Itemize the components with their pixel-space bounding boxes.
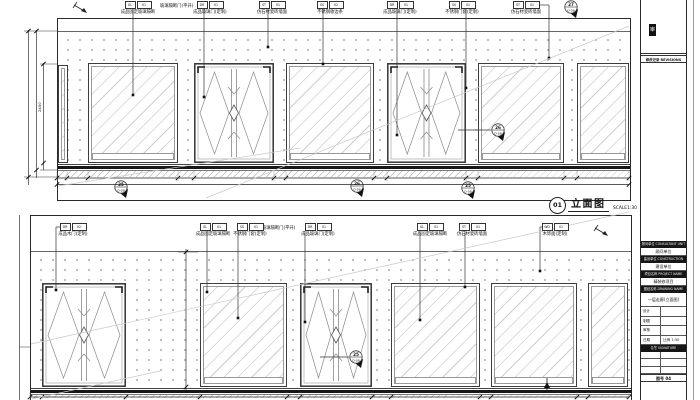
- tag-codes: DR 01: [378, 1, 422, 9]
- material-tag: SS 02 不锈钢收边条: [308, 1, 352, 15]
- signature-row: [641, 367, 686, 374]
- dim-label: 2400: [37, 102, 42, 112]
- material-tag: ST 01 仿石材瓷砖墙面: [250, 1, 294, 15]
- material-tag: SS 01 不锈钢门套(定制): [440, 1, 484, 15]
- drawing-sheet: 25D-0826D-0825D-0826D-0827D-0825D-082400…: [0, 0, 700, 400]
- tag-code: 01: [471, 223, 486, 231]
- info-value: [661, 307, 686, 316]
- tag-codes: ST 01: [250, 1, 294, 9]
- panel-base: [204, 377, 283, 384]
- tag-code: DR: [197, 1, 208, 9]
- sign-cell: [661, 352, 686, 358]
- tag-code: GL: [200, 223, 211, 231]
- tag-code: 01: [429, 223, 444, 231]
- tag-codes: SS 01: [228, 223, 272, 231]
- glass-hatch: [91, 66, 175, 160]
- tag-codes: WD 01: [533, 223, 577, 231]
- panel-base: [495, 377, 573, 384]
- revisions-header: 修改记录 REVISIONS: [641, 55, 686, 63]
- sign-cell: [661, 359, 686, 365]
- tag-label: 成品玻璃门(定制): [378, 10, 422, 15]
- svg-text:D-08: D-08: [567, 9, 574, 13]
- double-glass-door: [387, 63, 466, 163]
- tag-code: 01: [554, 223, 569, 231]
- signature-row: [641, 359, 686, 366]
- drawing-number-bubble: 01: [549, 197, 566, 214]
- panel-base: [395, 377, 476, 384]
- sheet-fold-line: [693, 0, 694, 400]
- titleblock-label: 顾问单位 CONSULTANT UNIT: [641, 241, 686, 248]
- info-label: 制图: [641, 317, 661, 326]
- tag-code: 02: [72, 223, 87, 231]
- material-tag: WD 01 木饰面(定制): [533, 223, 577, 237]
- titleblock-label: 建设单位 CONSTRUCTION UNIT: [641, 256, 686, 263]
- material-tag: ST 01 仿石材瓷砖墙面: [504, 1, 548, 15]
- floor-line: [31, 388, 631, 389]
- glass-hatch: [591, 286, 625, 384]
- tag-label: 成品玻璃门(定制): [296, 232, 340, 237]
- titleblock-label: 图纸名称 DRAWING NAME: [641, 286, 686, 293]
- sign-cell: [661, 367, 686, 373]
- tag-label: 成品固定玻璃隔断: [116, 10, 160, 15]
- tag-codes: DR 01: [296, 223, 340, 231]
- tag-label: 不锈钢门套(定制): [228, 232, 272, 237]
- tag-code: SS: [449, 1, 460, 9]
- tag-label: 成品固定玻璃隔断: [408, 232, 452, 237]
- glass-hatch: [481, 66, 561, 160]
- tag-code: DR: [305, 223, 316, 231]
- info-row: 设计: [641, 307, 686, 317]
- sign-cell: [641, 367, 661, 373]
- info-row: 日期 2013.07 比例 1:30: [641, 336, 686, 346]
- info-row: 审核: [641, 326, 686, 336]
- titleblock-label: 项目名称 PROJECT NAME: [641, 271, 686, 278]
- material-tag: DR 01 成品玻璃门(定制): [378, 1, 422, 15]
- glass-panel: [200, 283, 287, 387]
- tag-label: 仿石材瓷砖墙面: [504, 10, 548, 15]
- info-label: 日期 2013.07: [641, 336, 661, 345]
- floor-hatch: [31, 395, 631, 398]
- tag-code: 02: [329, 1, 344, 9]
- tag-label: 不锈钢门套(定制): [440, 10, 484, 15]
- title-block: 审 修改记录 REVISIONS 会签 SIGNATURE 图号 04 顾问单位…: [640, 0, 687, 400]
- tag-code: SS: [237, 223, 248, 231]
- titleblock-value: 一层走廊(立面图): [641, 293, 686, 307]
- info-label: 审核: [641, 326, 661, 335]
- tag-code: 01: [209, 1, 224, 9]
- tag-codes: GL 01: [116, 1, 160, 9]
- glass-hatch: [203, 286, 284, 384]
- tag-code: DR: [387, 1, 398, 9]
- panel-base: [592, 377, 624, 384]
- tag-code: ST: [459, 223, 470, 231]
- info-row: 制图: [641, 317, 686, 327]
- glass-panel: [391, 283, 480, 387]
- glass-hatch: [394, 286, 477, 384]
- info-label: 设计: [641, 307, 661, 316]
- glass-hatch: [494, 286, 574, 384]
- drawing-title: 立面图: [568, 195, 609, 212]
- tag-code: 01: [317, 223, 332, 231]
- tag-label: 仿石材瓷砖墙面: [450, 232, 494, 237]
- material-tag: DR 01 成品玻璃门(定制): [296, 223, 340, 237]
- tag-code: ST: [513, 1, 524, 9]
- material-tag: ST 01 仿石材瓷砖墙面: [450, 223, 494, 237]
- tag-code: 01: [249, 223, 264, 231]
- tag-codes: ST 01: [450, 223, 494, 231]
- tag-code: 01: [399, 1, 414, 9]
- double-glass-door: [300, 283, 372, 387]
- glass-hatch: [61, 68, 65, 160]
- material-tag: DR 02 成品木门(定制): [51, 223, 95, 237]
- tag-code: 01: [271, 1, 286, 9]
- tag-label: 仿石材瓷砖墙面: [250, 10, 294, 15]
- info-value: [661, 317, 686, 326]
- tag-label: 木饰面(定制): [533, 232, 577, 237]
- tag-code: ST: [259, 1, 270, 9]
- floor-line: [58, 164, 630, 165]
- tag-label: 成品木门(定制): [51, 232, 95, 237]
- double-glass-door: [194, 63, 274, 163]
- panel-base: [581, 153, 625, 160]
- panel-base: [482, 153, 560, 160]
- glass-panel: [588, 283, 628, 387]
- stamp: 审: [649, 24, 656, 36]
- panel-base: [92, 153, 174, 160]
- tag-code: SS: [317, 1, 328, 9]
- tag-codes: DR 01: [188, 1, 232, 9]
- drawing-number-row: 图号 04: [641, 374, 686, 382]
- glass-hatch: [289, 66, 371, 160]
- tag-code: GL: [125, 1, 136, 9]
- detail-marker: 27D-08: [565, 1, 578, 18]
- tag-label: 不锈钢收边条: [308, 10, 352, 15]
- tag-code: GL: [417, 223, 428, 231]
- svg-text:27: 27: [568, 2, 574, 7]
- tag-code: 01: [525, 1, 540, 9]
- tag-label: 成品玻璃门(定制): [188, 10, 232, 15]
- tag-code: DR: [60, 223, 71, 231]
- glass-panel: [491, 283, 577, 387]
- double-glass-door: [42, 283, 126, 387]
- info-value: [661, 326, 686, 335]
- tag-code: 01: [461, 1, 476, 9]
- view-arrow-icon: [73, 2, 87, 13]
- material-tag: SS 01 不锈钢门套(定制): [228, 223, 272, 237]
- titleblock-value: 建设单位: [641, 263, 686, 271]
- signature-row: [641, 352, 686, 359]
- tag-codes: GL 01: [408, 223, 452, 231]
- glass-panel: [286, 63, 374, 163]
- tag-code: 01: [212, 223, 227, 231]
- tag-codes: DR 02: [51, 223, 95, 231]
- material-tag: GL 01 成品固定玻璃隔断: [408, 223, 452, 237]
- titleblock-value: 精装修项目: [641, 278, 686, 286]
- tag-codes: SS 02: [308, 1, 352, 9]
- material-tag: DR 01 成品玻璃门(定制): [188, 1, 232, 15]
- drawing-scale: SCALE1:30: [613, 206, 637, 211]
- glass-panel: [478, 63, 564, 163]
- tag-code: 01: [137, 1, 152, 9]
- material-tag: GL 01 成品固定玻璃隔断: [116, 1, 160, 15]
- tag-codes: ST 01: [504, 1, 548, 9]
- panel-base: [290, 153, 370, 160]
- titleblock-value: 顾问单位: [641, 248, 686, 256]
- glass-panel: [577, 63, 629, 163]
- sign-cell: [641, 352, 661, 358]
- tag-code: WD: [542, 223, 553, 231]
- info-value: 比例 1:30: [661, 336, 686, 345]
- sign-cell: [641, 359, 661, 365]
- glass-panel: [88, 63, 178, 163]
- floor-hatch: [58, 171, 630, 177]
- glass-panel: [58, 65, 68, 163]
- glass-hatch: [580, 66, 626, 160]
- tag-codes: SS 01: [440, 1, 484, 9]
